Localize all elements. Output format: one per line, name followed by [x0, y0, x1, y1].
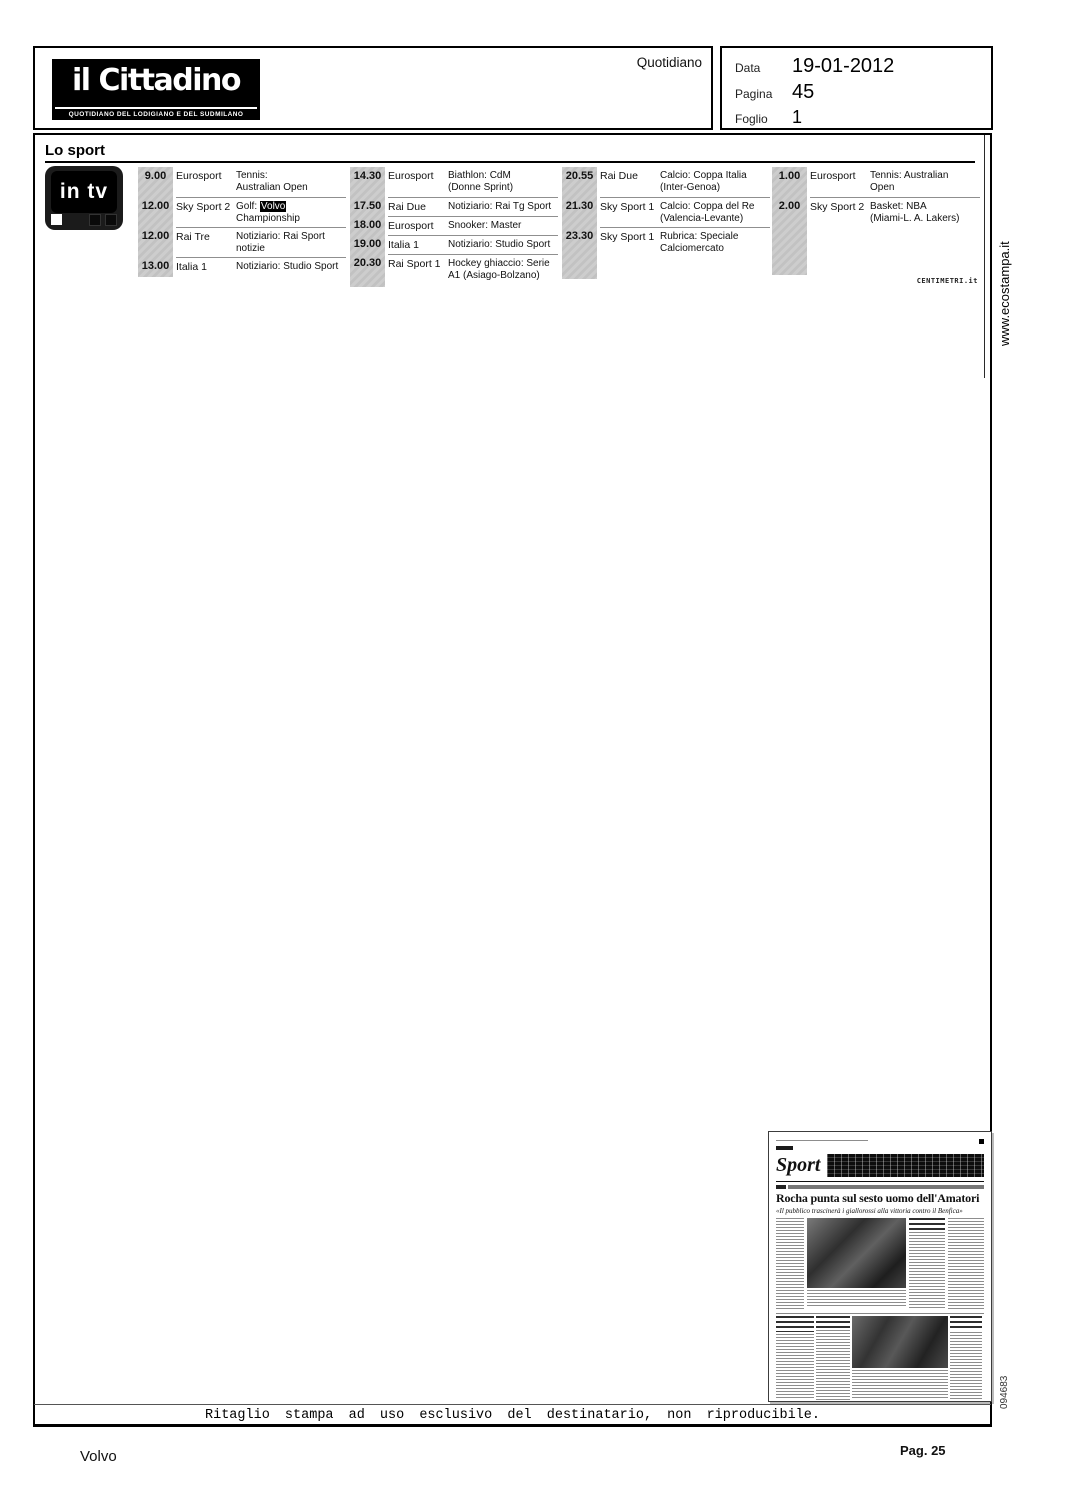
thumb-folio-line	[776, 1139, 984, 1144]
thumb-rule	[776, 1181, 984, 1182]
tv-schedule: 9.00 EurosportTennis: Australian Open 12…	[138, 167, 983, 292]
schedule-column-4: 1.00 EurosportTennis: Australian Open 2.…	[772, 167, 980, 227]
time-cell: 23.30	[562, 227, 597, 257]
program-cell: Basket: NBA (Miami-L. A. Lakers)	[870, 201, 980, 227]
tv-logo-label: in tv	[60, 180, 108, 204]
clipping-code: 094683	[999, 1362, 1010, 1409]
thumb-photo-block	[852, 1316, 948, 1402]
schedule-row: 12.00 Rai TreNotiziario: Rai Sport notiz…	[138, 227, 346, 257]
thumb-kicker-line	[776, 1185, 984, 1189]
channel-cell: Eurosport	[176, 170, 236, 197]
thumb-header: Sport	[776, 1152, 984, 1179]
schedule-column-1: 9.00 EurosportTennis: Australian Open 12…	[138, 167, 346, 276]
program-cell: Notiziario: Rai Tg Sport	[448, 201, 558, 216]
program-cell: Notiziario: Studio Sport	[448, 239, 558, 254]
meta-row-data: Data 19-01-2012	[735, 55, 991, 78]
channel-cell: Rai Due	[388, 201, 448, 216]
time-cell: 19.00	[350, 235, 385, 254]
channel-cell: Rai Tre	[176, 231, 236, 257]
masthead-box: il Cittadino QUOTIDIANO DEL LODIGIANO E …	[33, 46, 713, 130]
program-cell: Hockey ghiaccio: Serie A1 (Asiago-Bolzan…	[448, 258, 558, 284]
subject-label: Volvo	[80, 1448, 117, 1465]
data-label: Data	[735, 61, 792, 75]
program-cell: Snooker: Master	[448, 220, 558, 235]
newspaper-logo-title: il Cittadino	[52, 59, 260, 107]
program-cell: Calcio: Coppa Italia (Inter-Genoa)	[660, 170, 770, 197]
channel-cell: Sky Sport 2	[176, 201, 236, 227]
channel-cell: Italia 1	[176, 261, 236, 276]
newspaper-logo: il Cittadino QUOTIDIANO DEL LODIGIANO E …	[52, 59, 260, 120]
schedule-row: 13.00 Italia 1Notiziario: Studio Sport	[138, 257, 346, 276]
channel-cell: Eurosport	[388, 170, 448, 197]
thumb-col	[816, 1316, 850, 1402]
channel-cell: Rai Due	[600, 170, 660, 197]
program-cell: Biathlon: CdM (Donne Sprint)	[448, 170, 558, 197]
schedule-row: 20.55 Rai DueCalcio: Coppa Italia (Inter…	[562, 167, 770, 197]
thumb-subhead: «Il pubblico trascinerà i giallorossi al…	[776, 1207, 984, 1215]
sim-text	[950, 1332, 982, 1400]
sim-headline	[950, 1316, 982, 1330]
data-value: 19-01-2012	[792, 55, 894, 78]
tv-screen: in tv	[51, 171, 117, 213]
program-cell: Notiziario: Rai Sport notizie	[236, 231, 346, 257]
time-cell: 12.00	[138, 197, 173, 227]
program-cell: Tennis: Australian Open	[236, 170, 346, 197]
time-cell: 9.00	[138, 167, 173, 197]
meta-row-foglio: Foglio 1	[735, 107, 991, 128]
thumb-photo	[852, 1316, 948, 1368]
clipping-meta-box: Data 19-01-2012 Pagina 45 Foglio 1	[720, 46, 993, 130]
channel-cell: Eurosport	[388, 220, 448, 235]
channel-cell: Sky Sport 1	[600, 201, 660, 227]
sim-headline	[909, 1218, 945, 1230]
pagina-value: 45	[792, 81, 814, 104]
channel-cell: Eurosport	[810, 170, 870, 197]
channel-cell: Italia 1	[388, 239, 448, 254]
program-cell: Tennis: Australian Open	[870, 170, 980, 197]
tv-button-dark	[89, 214, 101, 226]
channel-cell: Rai Sport 1	[388, 258, 448, 284]
infographic-credit: CENTIMETRI.it	[870, 277, 978, 285]
meta-row-pagina: Pagina 45	[735, 81, 991, 104]
disclaimer-text: Ritaglio stampa ad uso esclusivo del des…	[205, 1408, 820, 1423]
ecostampa-url: www.ecostampa.it	[997, 148, 1012, 346]
program-text: Championship	[236, 213, 300, 224]
article-thumbnail: Sport Rocha punta sul sesto uomo dell'Am…	[768, 1131, 992, 1402]
foglio-value: 1	[792, 107, 802, 128]
time-cell: 20.30	[350, 254, 385, 284]
program-cell: Calcio: Coppa del Re (Valencia-Levante)	[660, 201, 770, 227]
time-cell: 2.00	[772, 197, 807, 227]
thumb-col	[909, 1218, 945, 1310]
thumb-photo	[807, 1218, 907, 1288]
sim-text	[776, 1218, 804, 1310]
program-cell: Rubrica: Speciale Calciomercato	[660, 231, 770, 257]
thumb-upper-body	[776, 1218, 984, 1310]
time-cell: 12.00	[138, 227, 173, 257]
footer-rule	[34, 1404, 991, 1405]
schedule-row: 14.30 EurosportBiathlon: CdM (Donne Spri…	[350, 167, 558, 197]
schedule-row: 19.00 Italia 1Notiziario: Studio Sport	[350, 235, 558, 254]
thumb-headline: Rocha punta sul sesto uomo dell'Amatori	[776, 1191, 984, 1206]
sim-headline	[816, 1316, 850, 1328]
channel-cell: Sky Sport 1	[600, 231, 660, 257]
section-rule	[45, 161, 975, 163]
sim-text	[816, 1330, 850, 1400]
section-title: Lo sport	[45, 142, 105, 159]
program-cell: Golf: Volvo Championship	[236, 201, 346, 227]
folio-square	[979, 1139, 984, 1144]
schedule-row: 12.00 Sky Sport 2Golf: Volvo Championshi…	[138, 197, 346, 227]
schedule-row: 23.30 Sky Sport 1Rubrica: Speciale Calci…	[562, 227, 770, 257]
sim-text	[776, 1334, 814, 1400]
tv-button-white	[51, 214, 62, 225]
sim-text	[807, 1290, 907, 1308]
schedule-row: 17.50 Rai DueNotiziario: Rai Tg Sport	[350, 197, 558, 216]
thumb-section-chip	[776, 1146, 793, 1150]
schedule-row: 9.00 EurosportTennis: Australian Open	[138, 167, 346, 197]
thumb-lower-body	[776, 1316, 984, 1402]
time-cell: 1.00	[772, 167, 807, 197]
schedule-column-2: 14.30 EurosportBiathlon: CdM (Donne Spri…	[350, 167, 558, 284]
pagina-label: Pagina	[735, 87, 792, 101]
foglio-label: Foglio	[735, 112, 792, 126]
schedule-row: 20.30 Rai Sport 1Hockey ghiaccio: Serie …	[350, 254, 558, 284]
schedule-row: 1.00 EurosportTennis: Australian Open	[772, 167, 980, 197]
thumb-section-title: Sport	[776, 1152, 820, 1179]
time-cell: 13.00	[138, 257, 173, 276]
channel-cell: Sky Sport 2	[810, 201, 870, 227]
time-cell: 18.00	[350, 216, 385, 235]
thumb-tv-strip	[827, 1154, 984, 1177]
page-number: Pag. 25	[900, 1443, 946, 1458]
time-cell: 20.55	[562, 167, 597, 197]
program-cell: Notiziario: Studio Sport	[236, 261, 346, 276]
time-cell: 17.50	[350, 197, 385, 216]
sim-text	[909, 1232, 945, 1310]
thumb-photo-block	[807, 1218, 907, 1310]
time-cell: 21.30	[562, 197, 597, 227]
thumb-col	[950, 1316, 982, 1402]
schedule-row: 18.00 EurosportSnooker: Master	[350, 216, 558, 235]
time-cell: 14.30	[350, 167, 385, 197]
publication-type-label: Quotidiano	[637, 55, 702, 70]
frame-inner-line	[984, 135, 985, 378]
newspaper-logo-subtitle: QUOTIDIANO DEL LODIGIANO E DEL SUDMILANO	[55, 107, 257, 118]
tv-icon: in tv	[45, 166, 123, 230]
thumb-col	[776, 1316, 814, 1402]
thumb-divider	[776, 1313, 984, 1314]
sim-headline	[776, 1316, 814, 1332]
schedule-column-3: 20.55 Rai DueCalcio: Coppa Italia (Inter…	[562, 167, 770, 257]
tv-button-dark	[105, 214, 117, 226]
schedule-row: 2.00 Sky Sport 2Basket: NBA (Miami-L. A.…	[772, 197, 980, 227]
schedule-row: 21.30 Sky Sport 1Calcio: Coppa del Re (V…	[562, 197, 770, 227]
sim-text	[776, 1140, 868, 1143]
program-text: Golf:	[236, 201, 260, 212]
sim-text	[852, 1370, 948, 1400]
sim-text	[948, 1218, 984, 1310]
program-highlight: Volvo	[260, 201, 286, 212]
